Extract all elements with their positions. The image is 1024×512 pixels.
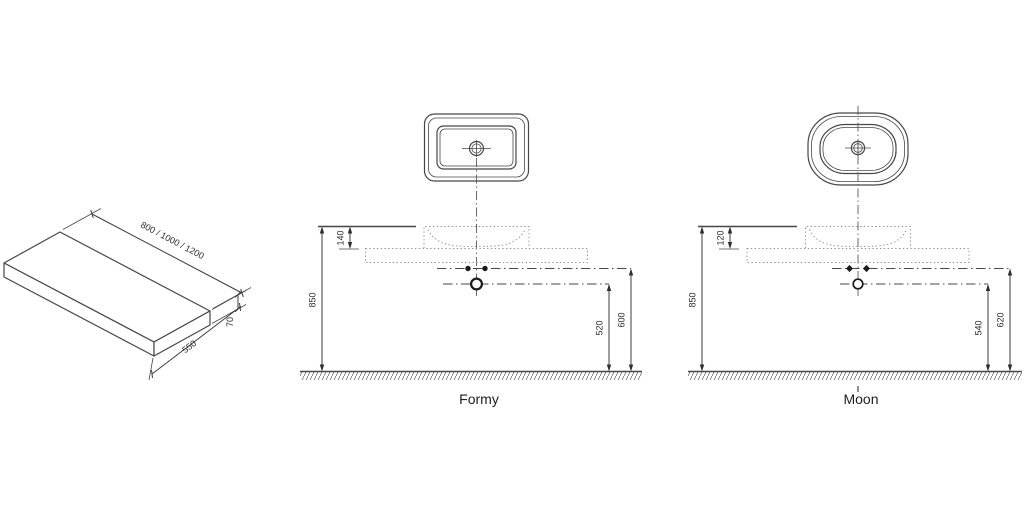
- formy-elevation-view: [300, 227, 642, 381]
- fixing-point: [482, 266, 487, 271]
- tick-mark: [240, 303, 241, 311]
- arrow-up: [1008, 269, 1012, 276]
- water-outlet: [471, 279, 482, 290]
- formy-siphon-height-label: 520: [595, 320, 605, 335]
- floor-hatching: [300, 372, 642, 380]
- moon-model-name: Moon: [843, 391, 878, 407]
- formy-dimension-140: 140: [336, 227, 360, 250]
- moon-elevation-view: [688, 227, 1022, 381]
- formy-dimension-850: 850: [308, 227, 325, 372]
- moon-outlet-height-label: 620: [996, 312, 1006, 327]
- extension-line: [63, 209, 101, 230]
- floor-hatching: [688, 372, 1022, 380]
- arrow-up: [700, 227, 704, 234]
- moon-siphon-height-label: 540: [974, 320, 984, 335]
- formy-dimension-600: 600: [617, 269, 634, 372]
- formy-view: 140 850 520 600 Formy: [300, 114, 642, 407]
- fixing-point: [863, 265, 870, 272]
- arrow-up: [728, 227, 732, 234]
- countertop-isometric-view: 800 / 1000 / 1200 70 550: [4, 209, 251, 381]
- formy-rim-offset-label: 140: [336, 230, 346, 245]
- arrow-up: [629, 269, 633, 276]
- arrow-up: [320, 227, 324, 234]
- moon-dimension-620: 620: [996, 269, 1013, 372]
- slab-length-label: 800 / 1000 / 1200: [139, 220, 206, 261]
- arrow-down: [348, 242, 352, 249]
- arrow-down: [607, 365, 611, 372]
- moon-dimension-120: 120: [716, 227, 740, 250]
- fixing-point: [465, 266, 470, 271]
- formy-dimension-520: 520: [595, 284, 612, 372]
- water-outlet: [853, 279, 863, 289]
- formy-model-name: Formy: [459, 391, 499, 407]
- tick-mark: [152, 370, 153, 378]
- arrow-up: [348, 227, 352, 234]
- arrow-down: [1008, 365, 1012, 372]
- dimension-thickness: 70: [212, 291, 246, 328]
- arrow-up: [986, 284, 990, 291]
- technical-drawing-sheet: 800 / 1000 / 1200 70 550: [0, 0, 1024, 512]
- moon-dimension-850: 850: [688, 227, 705, 372]
- moon-view: 120 850 540 620 Moon: [688, 106, 1023, 407]
- arrow-down: [320, 365, 324, 372]
- moon-height-label: 850: [688, 292, 698, 307]
- fixing-point: [846, 265, 853, 272]
- moon-dimension-540: 540: [974, 284, 991, 372]
- formy-height-label: 850: [308, 292, 318, 307]
- arrow-down: [986, 365, 990, 372]
- slab-thickness-label: 70: [225, 317, 235, 327]
- washbasin-countertop-diagram: 800 / 1000 / 1200 70 550: [0, 0, 1024, 512]
- formy-outlet-height-label: 600: [617, 312, 627, 327]
- arrow-up: [607, 284, 611, 291]
- arrow-down: [728, 242, 732, 249]
- arrow-down: [700, 365, 704, 372]
- arrow-down: [629, 365, 633, 372]
- moon-rim-offset-label: 120: [716, 230, 726, 245]
